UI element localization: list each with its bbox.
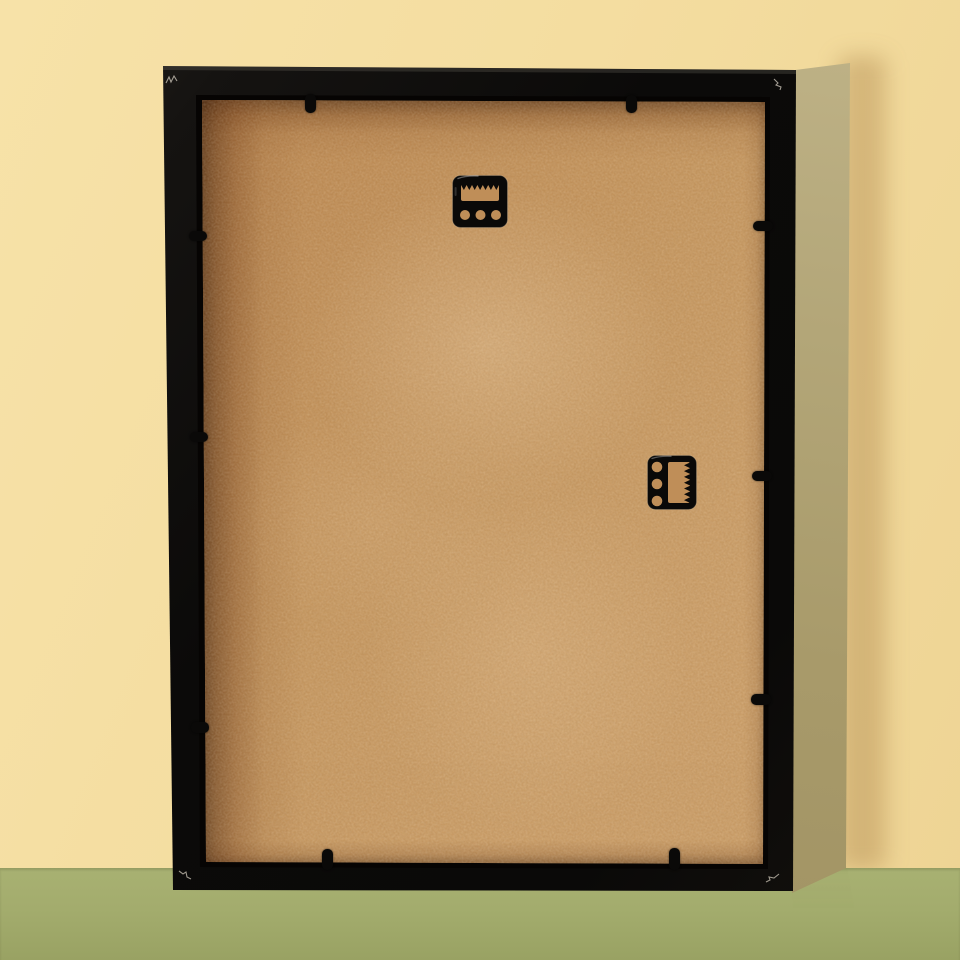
retainer-tab-right-2 (752, 471, 772, 481)
corner-scuff-bottom-right (765, 872, 781, 886)
retainer-tab-top-2 (626, 95, 637, 113)
retainer-tab-bottom-1 (322, 849, 333, 870)
corner-scuff-bottom-left (177, 868, 193, 882)
screw-hole (652, 479, 663, 490)
retainer-tab-bottom-2 (669, 848, 680, 870)
screw-hole (491, 210, 501, 220)
retainer-tab-left-2 (190, 432, 208, 442)
screw-hole (476, 210, 486, 220)
screw-hole (652, 496, 663, 507)
retainer-tab-right-1 (753, 221, 773, 231)
retainer-tab-top-1 (305, 94, 316, 113)
retainer-tab-left-3 (191, 722, 209, 733)
photo-scene (0, 0, 960, 960)
screw-hole (652, 462, 663, 473)
sawtooth-hanger-top (452, 175, 508, 228)
sawtooth-hanger-side (647, 455, 697, 510)
screw-hole (460, 210, 470, 220)
retainer-tab-left-1 (189, 231, 207, 241)
corner-scuff-top-right (772, 77, 786, 91)
corner-scuff-top-left (165, 74, 179, 86)
retainer-tab-right-3 (751, 694, 771, 705)
